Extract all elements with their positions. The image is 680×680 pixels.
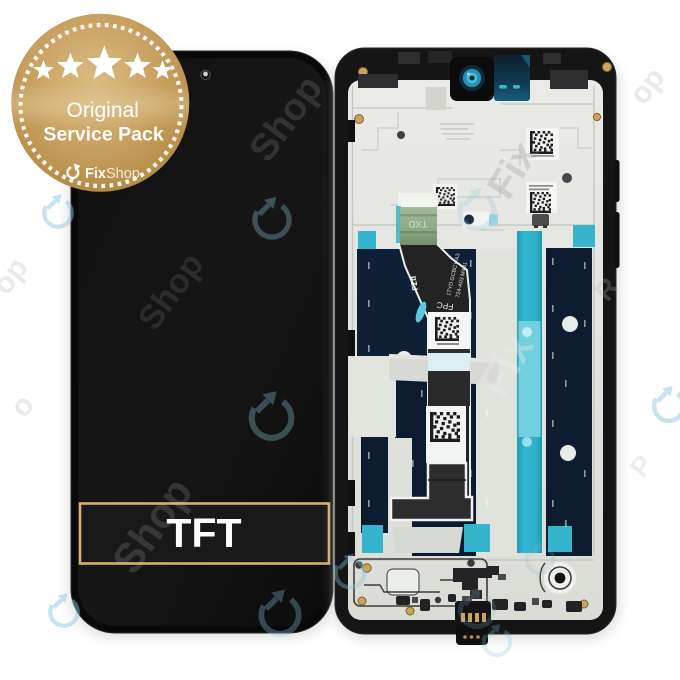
svg-text:Original: Original [67,99,139,122]
svg-text:TXD: TXD [408,218,427,229]
svg-text:Service Pack: Service Pack [43,124,164,146]
svg-text:FixShop: FixShop [85,166,140,182]
